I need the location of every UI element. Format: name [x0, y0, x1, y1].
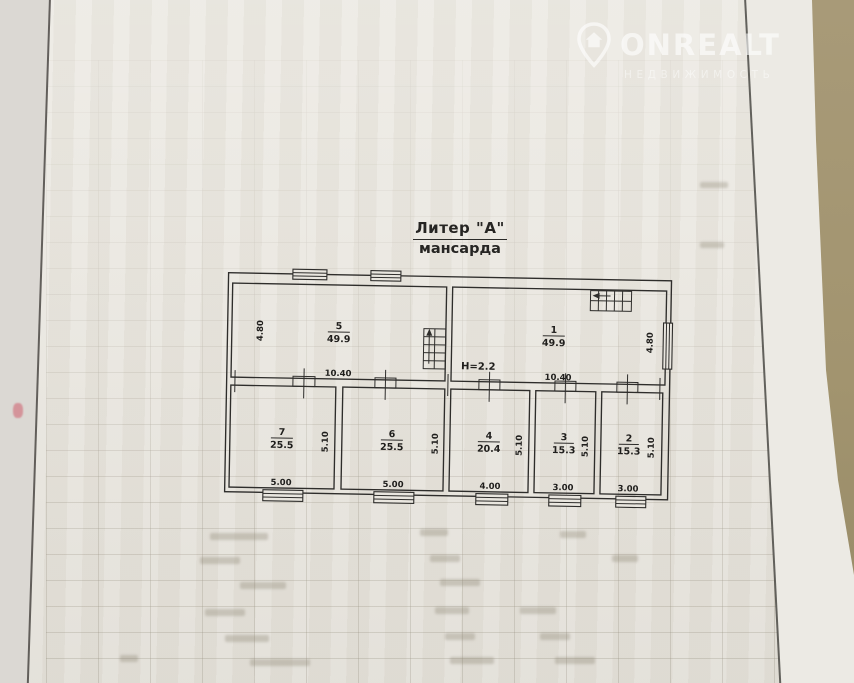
pink-mark: [13, 403, 23, 418]
room-area: 15.3: [552, 445, 576, 456]
plan-title-block: Литер "А" мансарда: [410, 218, 510, 257]
dimension-label: 3.00: [552, 483, 573, 493]
room-number: 6: [389, 429, 396, 440]
room-number: 1: [550, 325, 557, 336]
watermark-brand: ONREALT: [620, 28, 781, 62]
room-area: 25.5: [380, 442, 404, 453]
dimension-label: 4.80: [646, 332, 656, 353]
door-opening: [617, 374, 639, 404]
watermark-tagline: НЕДВИЖИМОСТЬ: [576, 69, 816, 81]
plan-title: Литер "А": [413, 219, 507, 240]
dimension-label: 10.40: [325, 369, 352, 379]
staircase-icon: [590, 291, 631, 312]
room-number: 3: [561, 432, 568, 443]
door-opening: [375, 370, 397, 400]
plan-subtitle: мансарда: [410, 241, 510, 257]
room-area: 25.5: [270, 440, 294, 451]
dimension-label: 10.40: [545, 373, 572, 383]
door-opening: [293, 368, 316, 398]
document-photo: Литер "А" мансарда: [0, 0, 854, 683]
room-number: 4: [486, 431, 493, 442]
window-symbol: [549, 495, 581, 507]
window-symbol: [374, 492, 414, 504]
dimension-label: 5.10: [581, 436, 591, 457]
window-symbol: [476, 494, 508, 506]
ceiling-height-note: Н=2.2: [461, 361, 496, 373]
room-area: 20.4: [477, 444, 501, 455]
window-symbol: [616, 496, 646, 508]
dimension-label: 5.10: [431, 433, 441, 454]
room-number: 7: [279, 427, 286, 438]
dimension-label: 5.00: [270, 478, 291, 488]
dimension-label: 3.00: [617, 484, 638, 494]
dimension-label: 5.10: [321, 431, 331, 452]
staircase-icon: [423, 329, 446, 369]
watermark: ONREALT НЕДВИЖИМОСТЬ: [576, 22, 816, 81]
room-area: 49.9: [542, 338, 566, 349]
dimension-label: 5.10: [515, 435, 525, 456]
dimension-label: 5.00: [382, 480, 403, 490]
house-pin-icon: [576, 22, 612, 68]
room-number: 5: [336, 321, 343, 332]
window-symbol: [663, 323, 673, 369]
room-number: 2: [626, 433, 633, 444]
window-symbol: [263, 490, 303, 502]
room-area: 49.9: [327, 334, 351, 345]
window-symbol: [371, 271, 401, 282]
window-symbol: [293, 269, 327, 280]
dimension-label: 4.80: [256, 320, 266, 341]
room-area: 15.3: [617, 446, 641, 457]
dimension-label: 5.10: [647, 437, 657, 458]
dimension-label: 4.00: [479, 482, 500, 492]
door-opening: [479, 372, 501, 402]
floor-plan: 5 49.9 1 49.9 4.80 4.80 10.40 10.40 Н=2.…: [224, 268, 676, 514]
